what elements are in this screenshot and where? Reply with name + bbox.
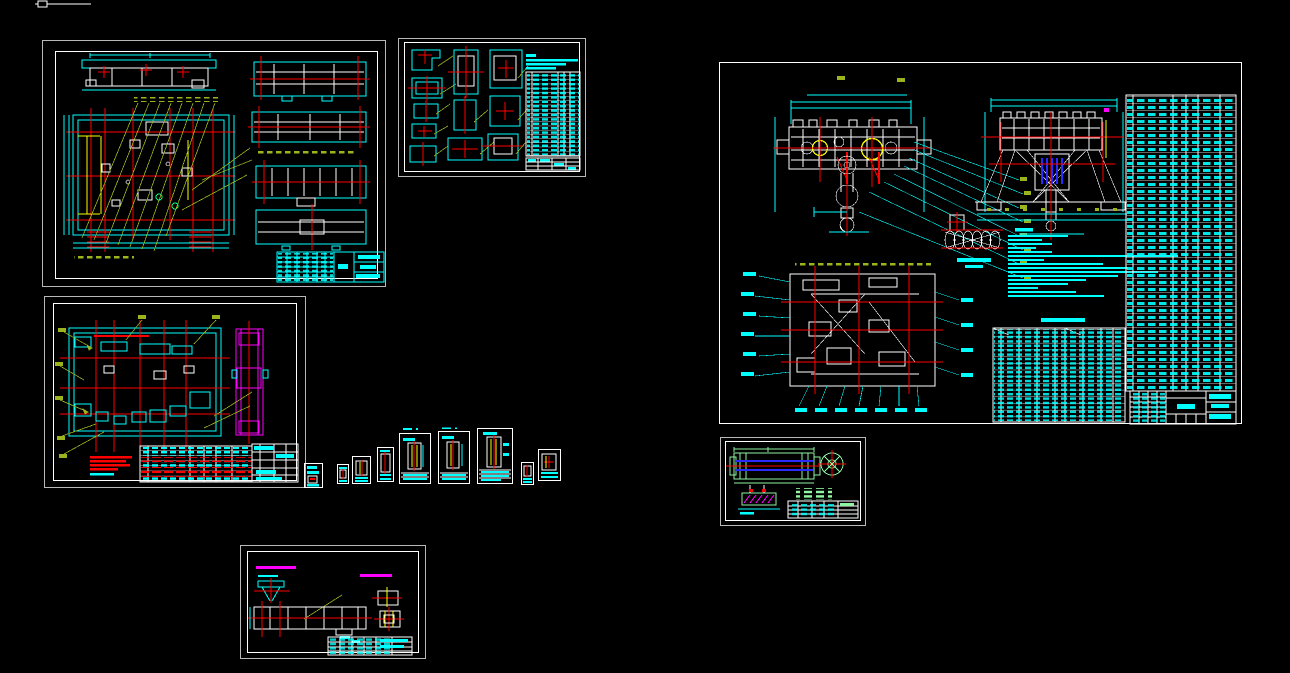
sheet-b-parts-detail[interactable] xyxy=(399,39,586,177)
detail-views xyxy=(372,587,404,631)
plan-view xyxy=(741,262,973,412)
plan-view xyxy=(60,320,230,452)
cad-canvas[interactable] xyxy=(0,0,1290,673)
leader-arrows xyxy=(60,320,252,454)
side-elevation-magenta xyxy=(232,321,268,444)
bom-table xyxy=(1126,95,1236,391)
sheet-e4[interactable] xyxy=(400,434,431,484)
drum-end-view xyxy=(818,450,846,478)
section-views xyxy=(248,56,370,250)
title-block xyxy=(277,252,384,282)
sheet-e2[interactable] xyxy=(353,457,371,484)
viewport-marker xyxy=(35,1,91,7)
end-view xyxy=(975,98,1127,240)
beam-elevation-view xyxy=(82,53,216,90)
sheet-e1[interactable] xyxy=(338,465,349,484)
sheet-g-rope-drum[interactable] xyxy=(721,438,866,526)
bracket-detail xyxy=(738,485,780,515)
title-block xyxy=(526,158,580,170)
title-block xyxy=(252,444,298,482)
part-views xyxy=(408,46,528,166)
sheet-e7[interactable] xyxy=(522,463,534,485)
sheet-f-end-beam[interactable] xyxy=(241,546,426,659)
sheet-e5-caption xyxy=(441,426,457,429)
caption-right xyxy=(360,574,392,577)
sheet-c-trolley-assembly[interactable] xyxy=(720,63,1242,425)
title-block xyxy=(788,501,858,518)
performance-table xyxy=(993,318,1125,422)
parts-list-table xyxy=(526,72,580,156)
front-view xyxy=(773,76,1031,279)
sheet-e3[interactable] xyxy=(378,448,394,482)
parts-table xyxy=(140,446,252,482)
sheet-e5[interactable] xyxy=(439,432,470,484)
callout-row-top xyxy=(134,97,218,102)
bracket-view xyxy=(254,575,290,603)
sheet-e6[interactable] xyxy=(478,429,513,484)
sheet-d-frame-plan[interactable] xyxy=(45,297,306,488)
drum-side-view xyxy=(726,447,822,483)
notes xyxy=(526,54,578,70)
green-notes xyxy=(796,488,832,500)
caption-left xyxy=(256,566,296,569)
leader-fan xyxy=(82,103,252,251)
sheet-e4-caption xyxy=(402,428,418,431)
sheet-a-frame-assembly[interactable] xyxy=(43,41,386,287)
red-notes xyxy=(90,456,132,475)
sheet-e8[interactable] xyxy=(539,450,561,481)
title-block xyxy=(1130,391,1236,424)
callout-row-bottom xyxy=(74,254,134,259)
sheet-d2-mini-slip[interactable] xyxy=(305,464,323,488)
